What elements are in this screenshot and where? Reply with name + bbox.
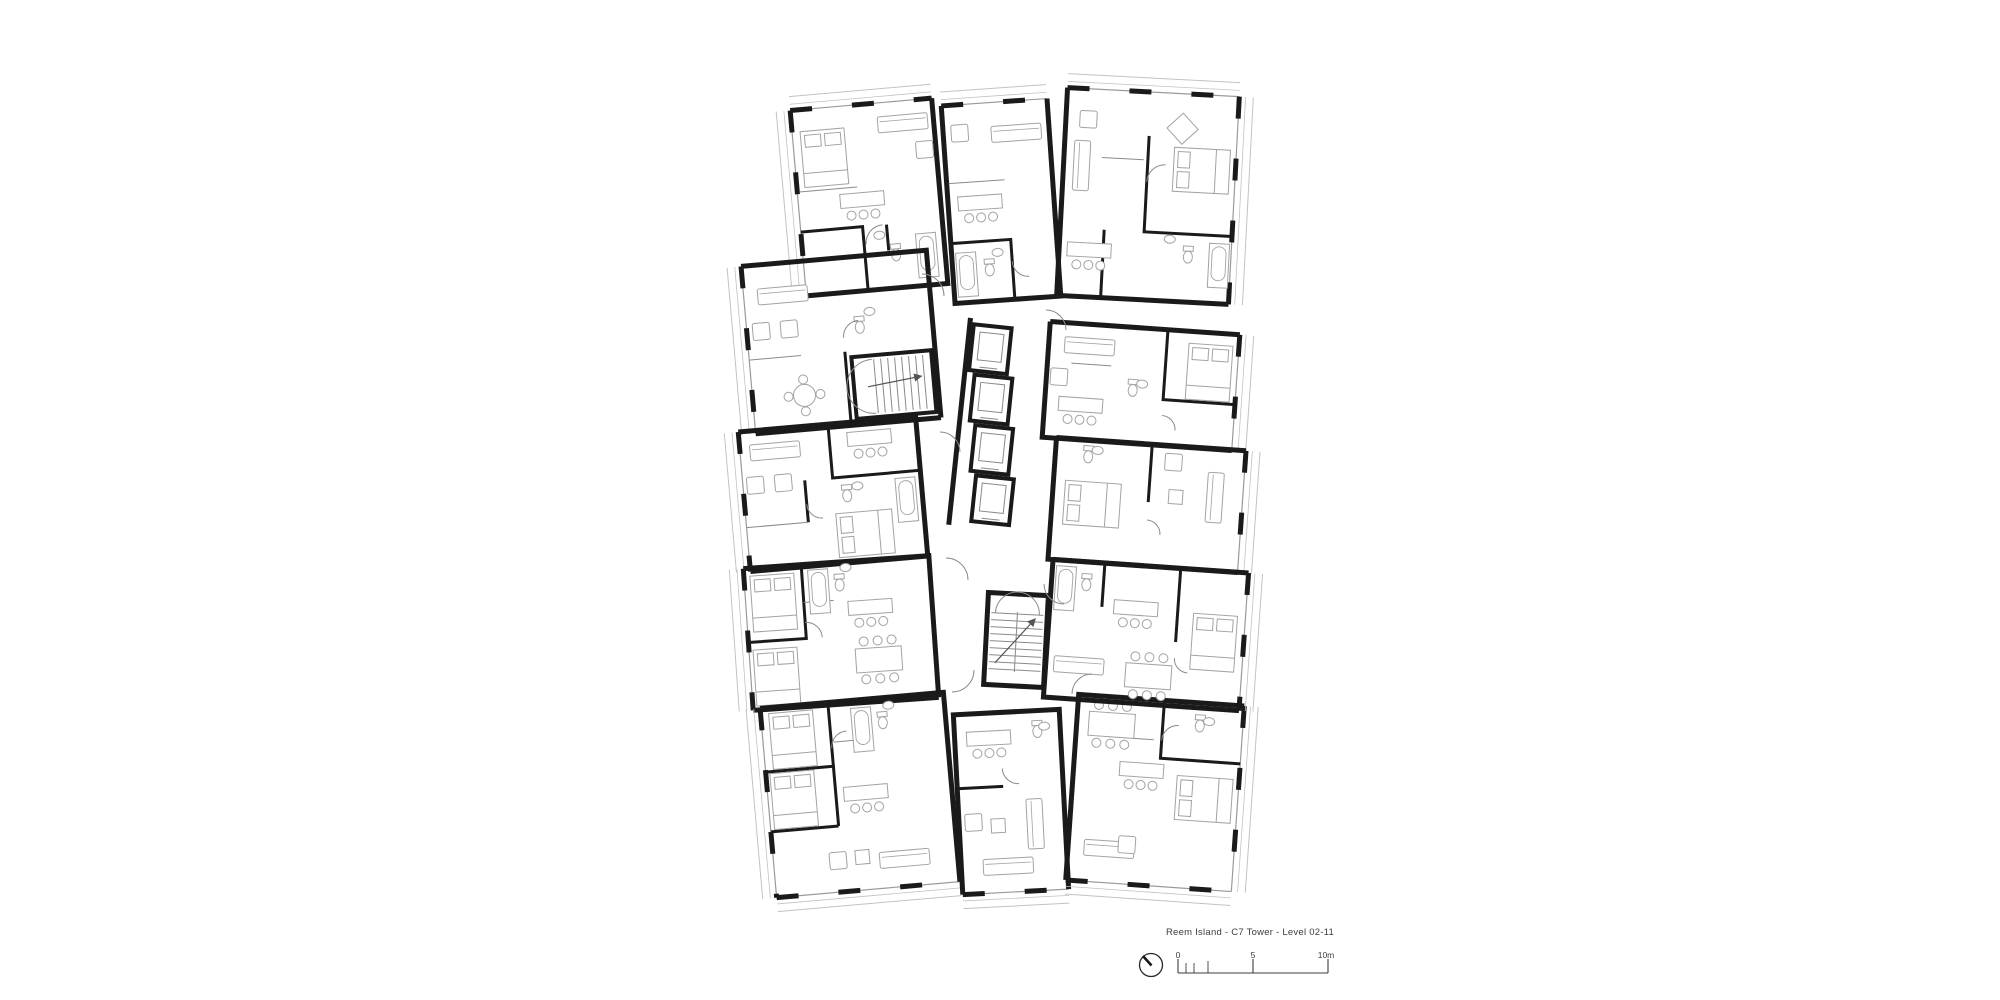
scale-label-5: 5 [1245, 950, 1261, 960]
unit-bottom-middle [953, 709, 1069, 908]
north-arrow-icon [1140, 954, 1163, 977]
unit-right-4 [1043, 559, 1262, 711]
unit-left-4 [729, 556, 938, 712]
plan-drawing [724, 74, 1262, 913]
unit-left-3 [724, 417, 927, 573]
unit-top-right [1057, 74, 1254, 305]
drawing-sheet: Reem Island - C7 Tower - Level 02-11 0 5… [0, 0, 2000, 1000]
stair-lower [984, 590, 1049, 687]
unit-right-2 [1042, 322, 1254, 452]
plan-caption: Reem Island - C7 Tower - Level 02-11 [1145, 927, 1355, 938]
scale-bar [1178, 959, 1328, 973]
scale-label-0: 0 [1170, 950, 1186, 960]
floor-plan [0, 0, 2000, 1000]
unit-bottom-right [1065, 694, 1259, 906]
unit-top-left [775, 84, 948, 297]
core-elevators [949, 318, 1030, 531]
unit-left-2 [727, 250, 941, 435]
unit-right-3 [1048, 438, 1260, 574]
scale-label-10m: 10m [1306, 950, 1346, 960]
unit-bottom-left [746, 692, 961, 912]
unit-top-middle [940, 85, 1061, 304]
